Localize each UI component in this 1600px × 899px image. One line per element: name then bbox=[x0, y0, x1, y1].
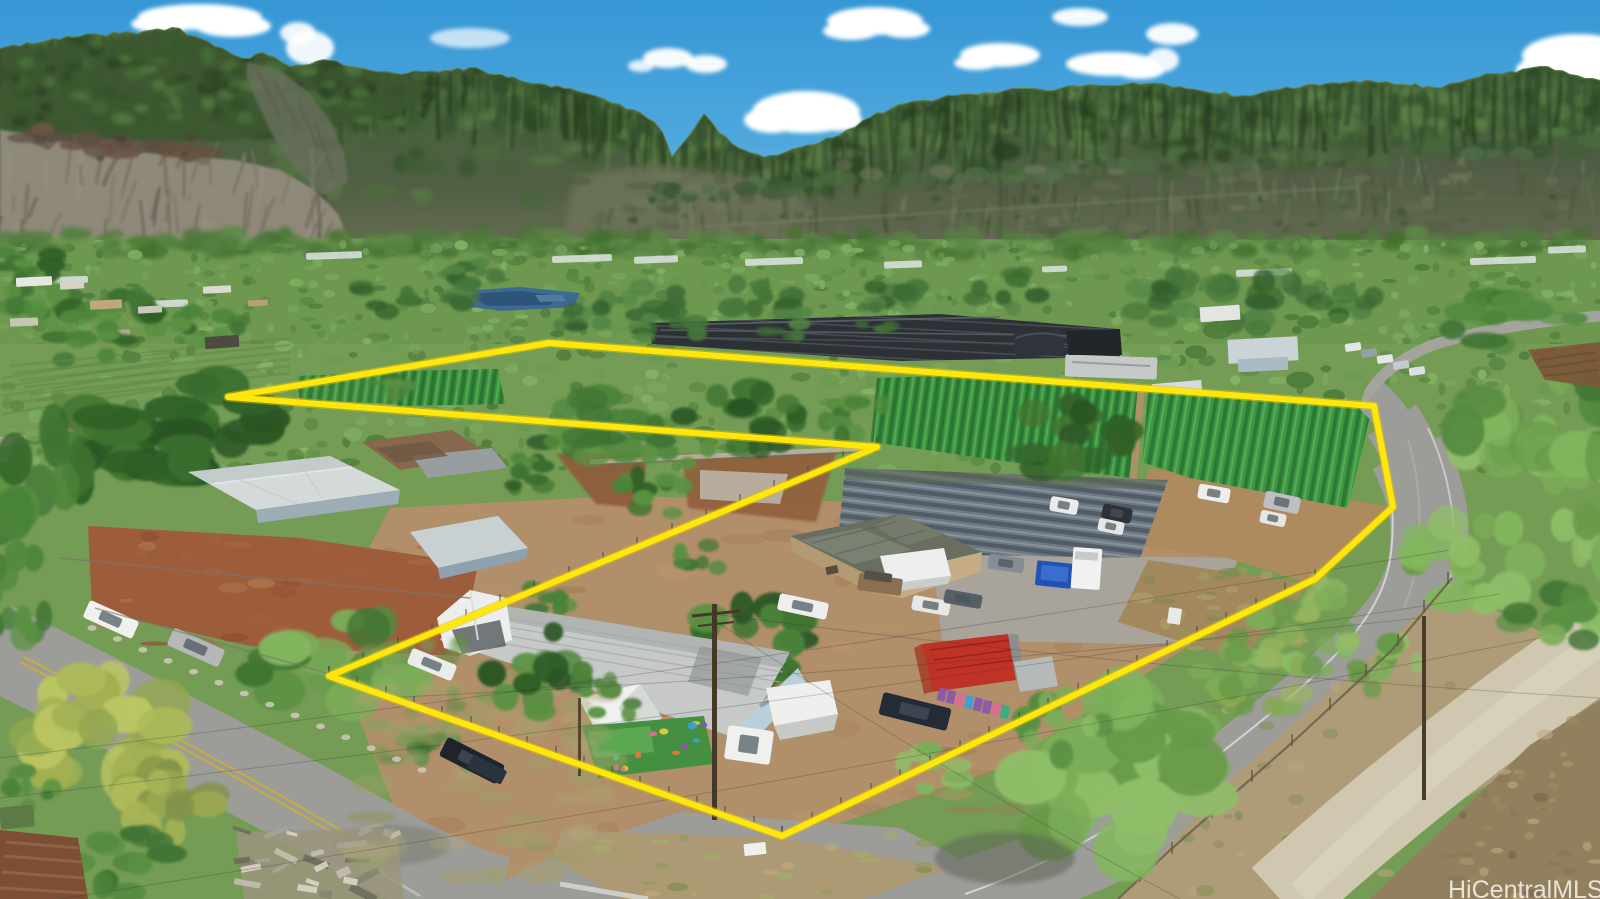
svg-text:HiCentralMLS: HiCentralMLS bbox=[1448, 876, 1600, 899]
